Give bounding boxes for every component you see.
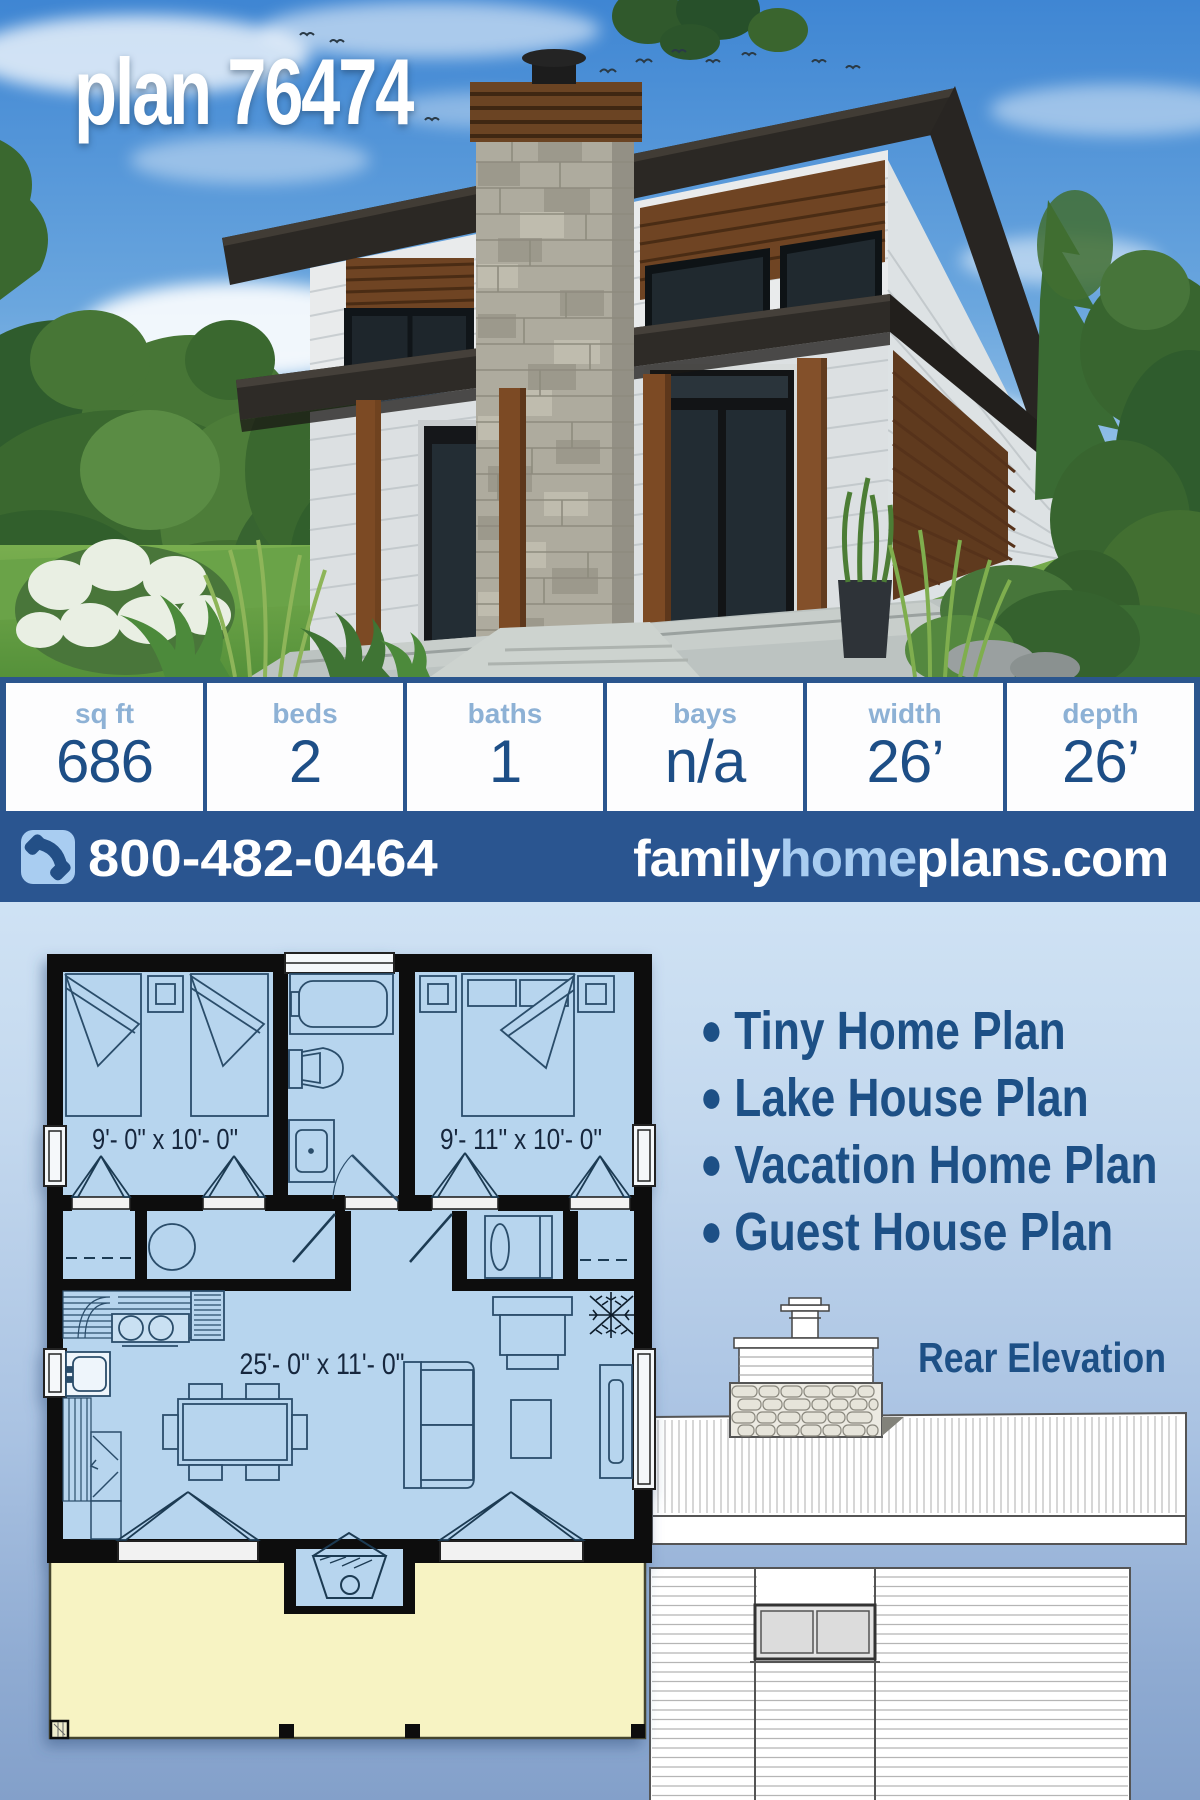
svg-text:25'- 0" x 11'- 0": 25'- 0" x 11'- 0" bbox=[240, 1348, 405, 1381]
svg-text:9'- 11" x 10'- 0": 9'- 11" x 10'- 0" bbox=[440, 1124, 602, 1156]
svg-text:9'- 0" x 10'- 0": 9'- 0" x 10'- 0" bbox=[92, 1124, 238, 1156]
